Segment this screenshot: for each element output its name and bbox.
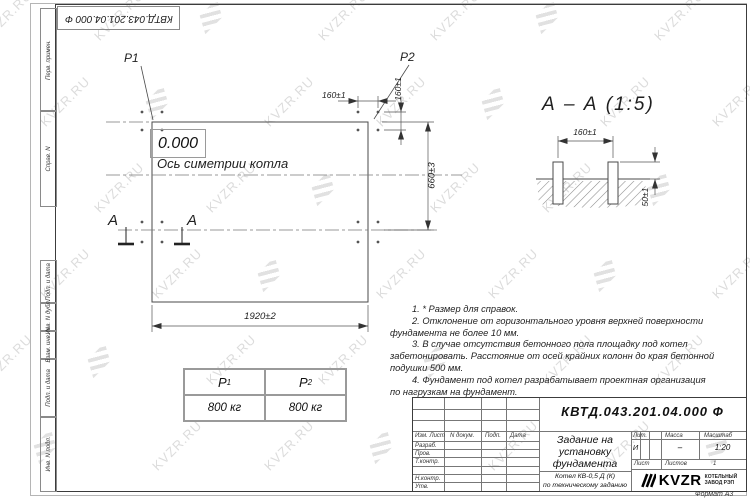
tb-logo-text: KVZR	[659, 472, 702, 489]
section-dim-160: 160±1	[560, 127, 610, 137]
note-line: подушки 500 мм.	[390, 363, 748, 375]
load-table-value-p2: 800 кг	[265, 395, 346, 421]
note-line: 3. В случае отсутствия бетонного пола пл…	[390, 339, 748, 351]
tb-subtitle-line1: Котел КВ-0,5 Д (К)	[539, 473, 631, 480]
kvzr-logo-icon	[640, 473, 656, 488]
dim-160-horizontal: 160±1	[322, 90, 346, 100]
tb-scale-header: Масштаб	[704, 433, 732, 439]
note-line: 1. * Размер для справок.	[390, 304, 748, 316]
section-view-title: А – А (1:5)	[542, 94, 655, 116]
tb-sheets-value: 1	[713, 461, 716, 467]
tb-row-nkontr: Н.контр.	[415, 476, 440, 482]
section-letter-left: А	[108, 212, 118, 229]
tb-header-data: Дата	[510, 433, 526, 439]
tb-lit-header: Лит.	[633, 433, 647, 439]
title-block: Изм. Лист N докум. Подп. Дата Разраб. Пр…	[412, 397, 747, 492]
load-point-p2-label: P2	[400, 50, 415, 64]
tb-sheet-label: Лист	[634, 461, 649, 467]
level-mark-box: 0.000	[150, 129, 206, 158]
tb-row-tkontr: Т.контр.	[415, 459, 439, 465]
drawing-sheet: KVZR.RUKVZR.RUKVZR.RUKVZR.RUKVZR.RUKVZR.…	[0, 0, 750, 500]
format-label: Формат А3	[695, 491, 733, 498]
tb-scale-value: 1:20	[699, 443, 746, 452]
note-line: 4. Фундамент под котел разрабатывает про…	[390, 375, 748, 387]
load-point-p1-label: P1	[124, 51, 139, 65]
tb-header-podp: Подп.	[485, 433, 501, 439]
tb-row-prov: Пров.	[415, 451, 431, 457]
tb-mass-header: Масса	[665, 433, 683, 439]
tb-sheets-label: Листов	[665, 461, 687, 467]
tb-subtitle-line2: по техническому заданию	[539, 482, 631, 489]
load-table-value-p1: 800 кг	[184, 395, 265, 421]
tb-logo-row: KVZR КОТЕЛЬНЫЙ ЗАВОД РЭП	[631, 469, 746, 491]
tb-title-line2: установку	[539, 446, 631, 458]
load-table-header-p2: P2	[265, 369, 346, 395]
note-line: фундамента не более 10 мм.	[390, 328, 748, 340]
tb-mass-value: –	[661, 443, 699, 452]
boiler-symmetry-axis-label: Ось симетрии котла	[157, 156, 288, 171]
level-mark-value: 0.000	[158, 135, 198, 153]
dim-1920: 1920±2	[218, 311, 302, 322]
load-table: P1 P2 800 кг 800 кг	[183, 368, 347, 422]
section-letter-right: А	[187, 212, 197, 229]
tb-row-utv: Утв.	[415, 484, 429, 490]
note-line: 2. Отклонение от горизонтального уровня …	[390, 316, 748, 328]
tb-row-razrab: Разраб.	[415, 443, 437, 449]
tb-title-line1: Задание на	[539, 434, 631, 447]
note-line: забетонировать. Расстояние от осей крайн…	[390, 351, 748, 363]
technical-notes: 1. * Размер для справок. 2. Отклонение о…	[390, 304, 748, 398]
tb-header-n-dokum: N докум.	[450, 433, 474, 439]
tb-logo-caption: КОТЕЛЬНЫЙ ЗАВОД РЭП	[705, 474, 738, 486]
tb-doc-number: КВТД.043.201.04.000 Ф	[539, 404, 746, 419]
load-table-header-p1: P1	[184, 369, 265, 395]
tb-lit-value: И	[631, 443, 640, 452]
dim-660: 660±3	[427, 146, 438, 206]
tb-header-izm-list: Изм. Лист	[415, 433, 445, 439]
dim-160-vertical: 160±1	[393, 69, 403, 109]
section-dim-50: 50±1	[640, 177, 650, 217]
tb-title-line3: фундамента	[539, 458, 631, 470]
